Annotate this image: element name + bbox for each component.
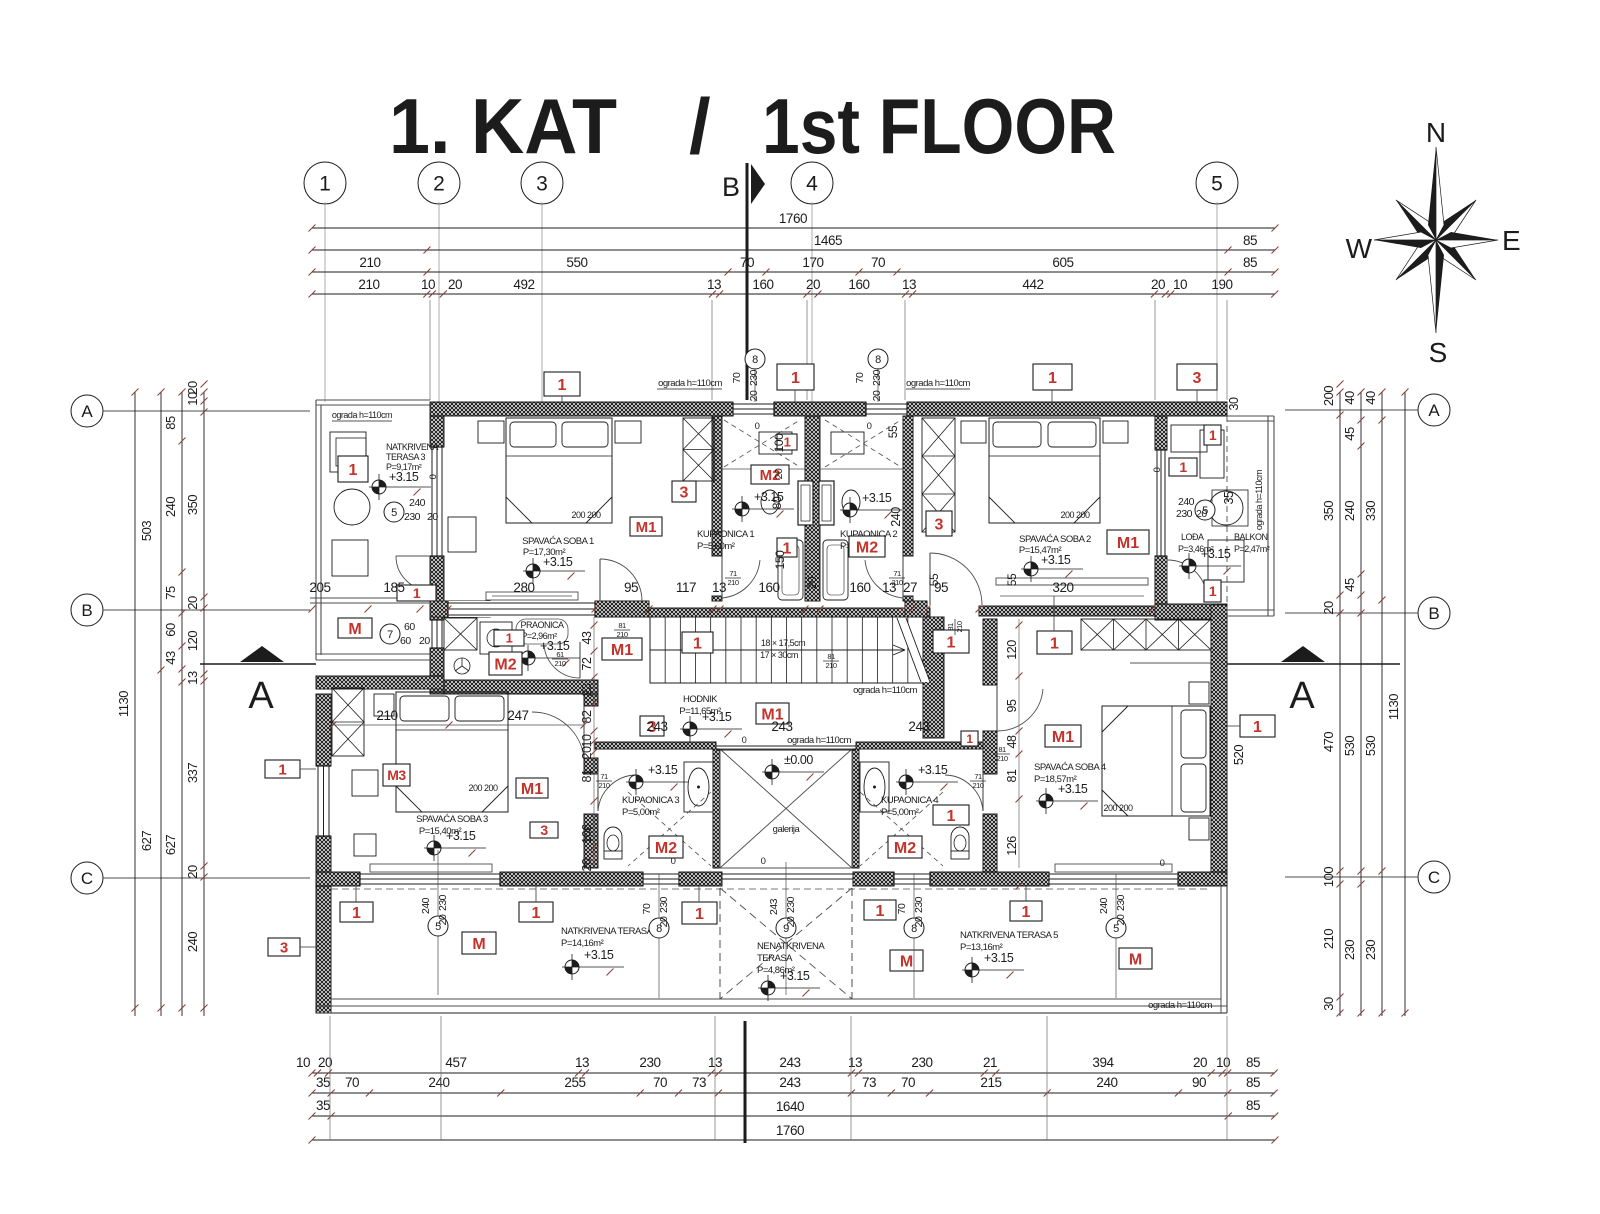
svg-text:M1: M1 — [521, 781, 543, 798]
svg-text:1: 1 — [506, 631, 513, 646]
svg-text:240: 240 — [1178, 496, 1195, 508]
svg-text:0: 0 — [671, 856, 676, 867]
svg-text:+3.15: +3.15 — [780, 969, 810, 983]
svg-text:1: 1 — [1022, 904, 1031, 921]
svg-text:85: 85 — [1246, 1055, 1260, 1070]
svg-text:A: A — [248, 675, 274, 717]
svg-text:70: 70 — [854, 372, 866, 383]
svg-text:200 200: 200 200 — [1060, 510, 1090, 520]
svg-text:230: 230 — [913, 896, 925, 913]
svg-text:470: 470 — [1321, 732, 1336, 753]
svg-text:HODNIK: HODNIK — [683, 694, 718, 705]
svg-text:TERASA 3: TERASA 3 — [386, 452, 426, 462]
svg-text:100: 100 — [772, 433, 786, 452]
svg-text:20: 20 — [419, 635, 430, 647]
svg-text:0: 0 — [1160, 858, 1165, 869]
svg-text:23: 23 — [580, 683, 594, 697]
svg-text:1: 1 — [278, 761, 286, 778]
svg-text:90: 90 — [1192, 1075, 1206, 1090]
svg-text:210: 210 — [1321, 929, 1336, 950]
svg-text:320: 320 — [1052, 580, 1073, 595]
svg-text:160: 160 — [849, 580, 870, 595]
svg-text:galerija: galerija — [773, 824, 801, 835]
svg-text:210: 210 — [891, 578, 902, 587]
svg-text:81: 81 — [827, 652, 835, 661]
svg-text:1: 1 — [876, 903, 885, 920]
svg-text:160: 160 — [758, 580, 779, 595]
svg-text:210: 210 — [727, 578, 738, 587]
svg-text:SPAVAĆA SOBA 3: SPAVAĆA SOBA 3 — [416, 814, 488, 825]
svg-text:1: 1 — [1048, 370, 1057, 387]
svg-text:243: 243 — [646, 719, 667, 734]
svg-text:240: 240 — [185, 932, 200, 953]
svg-text:3: 3 — [536, 173, 548, 196]
svg-text:200: 200 — [1321, 386, 1336, 407]
svg-text:85: 85 — [1246, 1075, 1260, 1090]
svg-text:B: B — [722, 172, 740, 202]
svg-text:1: 1 — [1209, 583, 1217, 599]
svg-text:8: 8 — [752, 354, 758, 366]
svg-text:0: 0 — [867, 421, 872, 432]
svg-text:243: 243 — [779, 1055, 800, 1070]
svg-text:M2: M2 — [894, 840, 916, 857]
svg-text:230: 230 — [1363, 940, 1378, 961]
svg-text:240: 240 — [428, 1075, 449, 1090]
svg-text:20: 20 — [185, 596, 200, 610]
svg-text:18 × 17,5cm: 18 × 17,5cm — [761, 638, 805, 648]
svg-text:1: 1 — [1050, 635, 1059, 652]
svg-text:7: 7 — [387, 629, 393, 641]
svg-text:3: 3 — [935, 516, 944, 533]
svg-text:13: 13 — [575, 1055, 589, 1070]
svg-text:+3.15: +3.15 — [702, 710, 732, 724]
svg-text:71: 71 — [893, 569, 901, 578]
svg-text:13: 13 — [902, 277, 916, 292]
svg-text:20: 20 — [1196, 508, 1207, 520]
svg-text:27: 27 — [903, 580, 917, 595]
svg-text:243: 243 — [771, 719, 792, 734]
svg-text:1: 1 — [695, 906, 704, 923]
svg-text:20: 20 — [1193, 1055, 1207, 1070]
svg-text:70: 70 — [345, 1075, 359, 1090]
svg-text:120: 120 — [185, 631, 200, 652]
svg-text:1: 1 — [791, 370, 800, 387]
svg-text:95: 95 — [624, 580, 638, 595]
svg-text:B: B — [81, 601, 92, 620]
svg-text:243: 243 — [779, 1075, 800, 1090]
svg-text:43: 43 — [580, 631, 594, 645]
svg-text:1st FLOOR: 1st FLOOR — [762, 82, 1116, 170]
svg-text:20: 20 — [748, 390, 760, 401]
svg-text:100: 100 — [1321, 867, 1336, 888]
svg-text:243: 243 — [908, 719, 929, 734]
svg-text:60: 60 — [404, 621, 415, 633]
svg-text:13: 13 — [712, 580, 726, 595]
svg-text:S: S — [1429, 337, 1448, 368]
svg-text:210: 210 — [616, 630, 627, 639]
svg-text:SPAVAĆA SOBA 4: SPAVAĆA SOBA 4 — [1034, 762, 1106, 773]
svg-text:1: 1 — [349, 462, 358, 479]
svg-text:3: 3 — [1193, 370, 1202, 387]
svg-text:530: 530 — [1342, 736, 1357, 757]
svg-text:71: 71 — [729, 569, 737, 578]
svg-text:N: N — [1426, 117, 1446, 148]
svg-text:20: 20 — [806, 277, 820, 292]
svg-text:350: 350 — [1321, 501, 1336, 522]
svg-text:8: 8 — [875, 354, 881, 366]
svg-text:35: 35 — [316, 1098, 330, 1113]
svg-text:80: 80 — [770, 496, 784, 509]
svg-text:KUPAONICA 4: KUPAONICA 4 — [881, 795, 938, 806]
svg-text:ograda h=110cm: ograda h=110cm — [906, 378, 970, 389]
svg-text:E: E — [1502, 225, 1521, 256]
svg-text:243: 243 — [768, 898, 780, 915]
svg-text:210: 210 — [376, 708, 397, 723]
svg-text:106: 106 — [580, 824, 594, 844]
svg-text:230: 230 — [404, 511, 421, 523]
svg-text:55: 55 — [1005, 573, 1019, 586]
svg-text:LOĐA: LOĐA — [1181, 532, 1204, 542]
svg-text:10: 10 — [580, 734, 594, 748]
svg-text:330: 330 — [1363, 501, 1378, 522]
svg-text:A: A — [81, 402, 93, 421]
svg-text:13: 13 — [185, 671, 200, 685]
svg-text:PRAONICA: PRAONICA — [520, 620, 564, 630]
svg-text:21: 21 — [983, 1055, 997, 1070]
svg-text:20: 20 — [871, 390, 883, 401]
svg-text:KUPAONICA 3: KUPAONICA 3 — [622, 795, 679, 806]
svg-text:45: 45 — [1342, 427, 1357, 441]
svg-text:230: 230 — [1115, 894, 1127, 911]
svg-text:230: 230 — [437, 894, 449, 911]
svg-text:+3.15: +3.15 — [446, 829, 476, 843]
svg-text:71: 71 — [974, 772, 982, 781]
svg-text:210: 210 — [825, 661, 836, 670]
svg-text:394: 394 — [1092, 1055, 1114, 1070]
svg-text:48: 48 — [1005, 735, 1019, 749]
svg-text:/: / — [689, 82, 711, 170]
svg-text:200 200: 200 200 — [1103, 803, 1133, 813]
svg-text:13: 13 — [848, 1055, 862, 1070]
svg-text:70: 70 — [871, 255, 885, 270]
svg-text:1: 1 — [1209, 427, 1217, 443]
svg-text:230: 230 — [658, 896, 670, 913]
svg-text:+3.15: +3.15 — [540, 639, 570, 653]
svg-text:20: 20 — [185, 865, 200, 879]
svg-text:0: 0 — [761, 856, 766, 867]
svg-text:85: 85 — [1243, 233, 1257, 248]
svg-text:520: 520 — [1231, 745, 1246, 766]
svg-text:240: 240 — [1098, 897, 1110, 914]
svg-text:BALKON: BALKON — [1234, 532, 1268, 542]
svg-text:1: 1 — [1253, 719, 1262, 736]
svg-text:45: 45 — [1342, 578, 1357, 592]
svg-text:+3.15: +3.15 — [984, 951, 1014, 965]
svg-text:1: 1 — [532, 905, 541, 922]
svg-text:190: 190 — [1211, 277, 1232, 292]
svg-text:73: 73 — [862, 1075, 876, 1090]
svg-text:M: M — [472, 936, 485, 953]
svg-text:10: 10 — [296, 1055, 310, 1070]
svg-text:492: 492 — [513, 277, 534, 292]
svg-text:+3.15: +3.15 — [1041, 553, 1071, 567]
svg-text:SPAVAĆA SOBA 2: SPAVAĆA SOBA 2 — [1019, 534, 1091, 545]
svg-text:M1: M1 — [1117, 535, 1139, 552]
svg-text:210: 210 — [358, 277, 379, 292]
svg-text:C: C — [81, 869, 93, 888]
svg-text:NENATKRIVENA: NENATKRIVENA — [757, 941, 825, 952]
svg-text:150: 150 — [773, 550, 787, 569]
svg-text:210: 210 — [972, 781, 983, 790]
svg-text:210: 210 — [955, 621, 964, 632]
svg-text:230: 230 — [785, 896, 797, 913]
svg-text:±0.00: ±0.00 — [784, 753, 813, 767]
svg-text:M3: M3 — [387, 767, 406, 783]
svg-text:247: 247 — [507, 708, 528, 723]
svg-text:M1: M1 — [611, 642, 633, 659]
svg-text:35: 35 — [316, 1075, 330, 1090]
svg-text:C: C — [1428, 868, 1440, 887]
svg-text:20: 20 — [773, 468, 785, 479]
svg-text:1130: 1130 — [116, 691, 131, 717]
svg-text:+3.15: +3.15 — [584, 948, 614, 962]
svg-text:17 × 30cm: 17 × 30cm — [760, 650, 798, 660]
svg-text:240: 240 — [889, 507, 903, 527]
svg-text:210: 210 — [996, 754, 1007, 763]
svg-text:2: 2 — [433, 173, 445, 196]
svg-text:60: 60 — [163, 623, 178, 637]
svg-text:20: 20 — [1151, 277, 1165, 292]
svg-text:1: 1 — [693, 635, 702, 652]
svg-text:1: 1 — [558, 377, 567, 394]
svg-text:ograda h=110cm: ograda h=110cm — [332, 410, 392, 420]
svg-text:40: 40 — [1342, 391, 1357, 405]
svg-text:210: 210 — [554, 659, 565, 668]
svg-text:35: 35 — [1222, 491, 1236, 505]
svg-text:30: 30 — [1321, 997, 1336, 1011]
svg-text:210: 210 — [598, 781, 609, 790]
svg-text:160: 160 — [752, 277, 773, 292]
svg-text:20: 20 — [785, 916, 797, 927]
svg-text:442: 442 — [1022, 277, 1043, 292]
svg-text:1760: 1760 — [776, 1123, 804, 1138]
svg-text:ograda h=110cm: ograda h=110cm — [1254, 470, 1264, 530]
svg-text:280: 280 — [513, 580, 534, 595]
svg-text:40: 40 — [1363, 391, 1378, 405]
svg-text:0: 0 — [428, 474, 439, 479]
svg-text:95: 95 — [1005, 699, 1019, 713]
svg-text:3: 3 — [680, 484, 689, 501]
svg-text:255: 255 — [564, 1075, 585, 1090]
svg-text:230: 230 — [639, 1055, 660, 1070]
svg-text:20: 20 — [805, 576, 819, 589]
svg-text:200 200: 200 200 — [571, 510, 601, 520]
svg-text:5: 5 — [1211, 173, 1223, 196]
svg-text:1: 1 — [1179, 459, 1187, 475]
svg-text:0: 0 — [742, 735, 747, 745]
svg-text:1: 1 — [352, 905, 361, 922]
svg-text:P=5,60m²: P=5,60m² — [697, 541, 735, 552]
svg-text:1: 1 — [947, 634, 956, 651]
svg-text:170: 170 — [802, 255, 823, 270]
svg-text:85: 85 — [1243, 255, 1257, 270]
svg-text:230: 230 — [748, 369, 760, 386]
svg-text:1130: 1130 — [1386, 694, 1401, 720]
svg-text:+3.15: +3.15 — [543, 555, 573, 569]
svg-text:NATKRIVENA TERASA 5: NATKRIVENA TERASA 5 — [960, 930, 1058, 941]
svg-text:M2: M2 — [856, 539, 878, 556]
svg-text:457: 457 — [445, 1055, 466, 1070]
svg-text:70: 70 — [653, 1075, 667, 1090]
svg-text:TERASA: TERASA — [757, 953, 793, 964]
svg-text:117: 117 — [676, 580, 696, 595]
svg-text:61: 61 — [556, 650, 564, 659]
svg-text:P=5,00m²: P=5,00m² — [622, 807, 660, 818]
svg-text:205: 205 — [309, 580, 330, 595]
svg-text:0: 0 — [755, 421, 760, 432]
svg-text:1760: 1760 — [779, 211, 807, 226]
svg-text:20: 20 — [437, 914, 449, 925]
svg-text:73: 73 — [692, 1075, 706, 1090]
svg-text:1640: 1640 — [776, 1099, 804, 1114]
svg-text:P=5,00m²: P=5,00m² — [881, 807, 919, 818]
svg-text:70: 70 — [641, 903, 653, 914]
svg-text:550: 550 — [566, 255, 587, 270]
svg-text:W: W — [1346, 233, 1373, 264]
svg-text:240: 240 — [1096, 1075, 1117, 1090]
svg-text:20: 20 — [913, 916, 925, 927]
svg-text:627: 627 — [139, 831, 154, 852]
svg-text:NATKRIVENA: NATKRIVENA — [386, 442, 438, 452]
svg-text:20: 20 — [580, 746, 594, 760]
svg-text:20: 20 — [427, 511, 438, 523]
svg-text:81: 81 — [618, 621, 626, 630]
svg-text:5: 5 — [391, 507, 397, 519]
svg-text:337: 337 — [185, 763, 200, 784]
svg-text:3: 3 — [280, 939, 288, 956]
svg-text:A: A — [1428, 401, 1440, 420]
svg-text:M: M — [348, 621, 361, 638]
svg-text:55: 55 — [886, 425, 900, 438]
svg-text:1: 1 — [413, 585, 421, 601]
svg-text:85: 85 — [163, 416, 178, 430]
svg-text:160: 160 — [848, 277, 869, 292]
svg-text:120: 120 — [1005, 640, 1019, 660]
svg-text:A: A — [1289, 675, 1315, 717]
svg-text:P=2,47m²: P=2,47m² — [1234, 544, 1270, 554]
svg-text:72: 72 — [580, 657, 594, 671]
svg-text:503: 503 — [139, 521, 154, 542]
svg-text:+3.15: +3.15 — [1058, 782, 1088, 796]
svg-text:+3.15: +3.15 — [648, 763, 678, 777]
svg-text:70: 70 — [901, 1075, 915, 1090]
svg-text:81: 81 — [580, 769, 594, 783]
svg-text:+3.15: +3.15 — [389, 470, 419, 484]
svg-text:M: M — [900, 953, 913, 970]
svg-text:ograda h=110cm: ograda h=110cm — [658, 378, 722, 389]
svg-text:230: 230 — [1342, 940, 1357, 961]
svg-text:530: 530 — [1363, 736, 1378, 757]
svg-text:B: B — [1428, 604, 1439, 623]
svg-text:NATKRIVENA TERASA 4: NATKRIVENA TERASA 4 — [561, 926, 659, 937]
svg-text:55: 55 — [927, 573, 941, 586]
svg-text:20: 20 — [448, 277, 462, 292]
svg-text:210: 210 — [359, 255, 380, 270]
svg-text:M1: M1 — [1052, 729, 1074, 746]
svg-text:350: 350 — [185, 495, 200, 516]
svg-text:215: 215 — [980, 1075, 1001, 1090]
svg-text:185: 185 — [383, 580, 404, 595]
svg-text:10: 10 — [185, 392, 200, 406]
svg-text:81: 81 — [998, 745, 1006, 754]
svg-text:200 200: 200 200 — [468, 783, 498, 793]
svg-text:10: 10 — [1173, 277, 1187, 292]
svg-text:10: 10 — [421, 277, 435, 292]
svg-text:20: 20 — [658, 916, 670, 927]
svg-text:1: 1 — [966, 732, 973, 746]
svg-text:60: 60 — [400, 635, 411, 647]
svg-text:75: 75 — [163, 586, 178, 600]
svg-text:+3.15: +3.15 — [918, 763, 948, 777]
svg-text:20: 20 — [1115, 914, 1127, 925]
svg-text:1: 1 — [947, 808, 956, 825]
svg-text:71: 71 — [600, 772, 608, 781]
svg-text:70: 70 — [731, 372, 743, 383]
svg-text:240: 240 — [409, 497, 426, 509]
svg-text:ograda h=110cm: ograda h=110cm — [787, 735, 851, 746]
svg-text:KUPAONICA 1: KUPAONICA 1 — [697, 529, 754, 540]
svg-text:SPAVAĆA SOBA 1: SPAVAĆA SOBA 1 — [522, 536, 594, 547]
svg-text:30: 30 — [1227, 397, 1241, 411]
svg-text:240: 240 — [163, 497, 178, 518]
svg-text:81: 81 — [1005, 769, 1019, 783]
svg-text:M2: M2 — [655, 840, 677, 857]
svg-text:ograda h=110cm: ograda h=110cm — [853, 685, 917, 696]
svg-text:230: 230 — [871, 369, 883, 386]
svg-text:627: 627 — [163, 835, 178, 856]
svg-text:20: 20 — [1321, 601, 1336, 615]
svg-text:240: 240 — [1342, 501, 1357, 522]
svg-text:+3.15: +3.15 — [862, 491, 892, 505]
svg-text:M: M — [1129, 951, 1142, 968]
svg-text:M2: M2 — [494, 656, 516, 673]
svg-text:13: 13 — [707, 277, 721, 292]
svg-text:+3.15: +3.15 — [1201, 547, 1231, 561]
svg-text:4: 4 — [806, 173, 818, 196]
svg-text:70: 70 — [740, 255, 754, 270]
svg-text:1: 1 — [319, 173, 331, 196]
svg-text:85: 85 — [1246, 1098, 1260, 1113]
svg-text:0: 0 — [1152, 467, 1163, 472]
svg-text:1465: 1465 — [814, 233, 842, 248]
svg-text:10: 10 — [1216, 1055, 1230, 1070]
svg-text:M1: M1 — [636, 519, 657, 536]
svg-text:240: 240 — [420, 897, 432, 914]
svg-text:605: 605 — [1052, 255, 1073, 270]
svg-text:230: 230 — [911, 1055, 932, 1070]
svg-text:81: 81 — [946, 623, 955, 631]
svg-text:3: 3 — [540, 822, 548, 838]
svg-text:1. KAT: 1. KAT — [389, 82, 617, 170]
svg-text:ograda h=110cm: ograda h=110cm — [1148, 1000, 1212, 1011]
svg-text:230: 230 — [1176, 508, 1193, 520]
svg-text:126: 126 — [1005, 836, 1019, 856]
svg-text:70: 70 — [896, 903, 908, 914]
svg-text:43: 43 — [163, 651, 178, 665]
